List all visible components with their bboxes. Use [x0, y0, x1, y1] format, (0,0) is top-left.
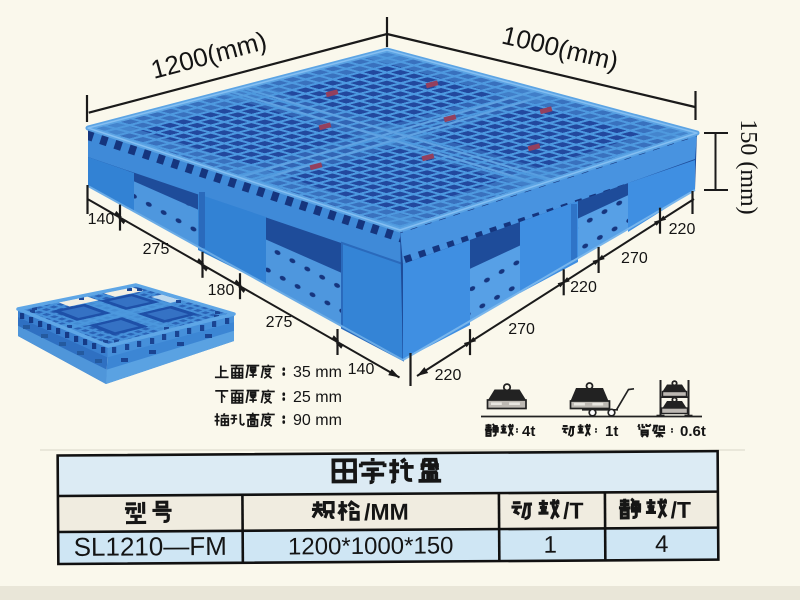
svg-text:270: 270: [508, 321, 535, 338]
svg-text:SL1210—FM: SL1210—FM: [74, 531, 227, 562]
svg-text:1200*1000*150: 1200*1000*150: [288, 532, 454, 560]
svg-text:4: 4: [655, 531, 669, 558]
svg-text:275: 275: [143, 241, 170, 258]
svg-text:25 mm: 25 mm: [293, 389, 342, 406]
svg-text:180: 180: [208, 282, 235, 299]
svg-text:220: 220: [435, 367, 462, 384]
svg-text:220: 220: [570, 279, 597, 296]
svg-text:/MM: /MM: [364, 499, 409, 525]
svg-text:1: 1: [543, 532, 557, 559]
svg-text:140: 140: [348, 361, 375, 378]
svg-text:140: 140: [88, 211, 115, 228]
svg-text:90 mm: 90 mm: [293, 412, 342, 429]
svg-text:1t: 1t: [605, 423, 618, 440]
svg-text:35 mm: 35 mm: [293, 364, 342, 381]
svg-text:275: 275: [266, 314, 293, 331]
svg-text:270: 270: [621, 250, 648, 267]
svg-text:/T: /T: [670, 497, 691, 523]
svg-text:220: 220: [669, 221, 696, 238]
svg-text:/T: /T: [563, 498, 584, 524]
svg-text:4t: 4t: [522, 423, 535, 440]
svg-text:150 (mm): 150 (mm): [735, 119, 761, 214]
svg-text:0.6t: 0.6t: [680, 423, 706, 440]
